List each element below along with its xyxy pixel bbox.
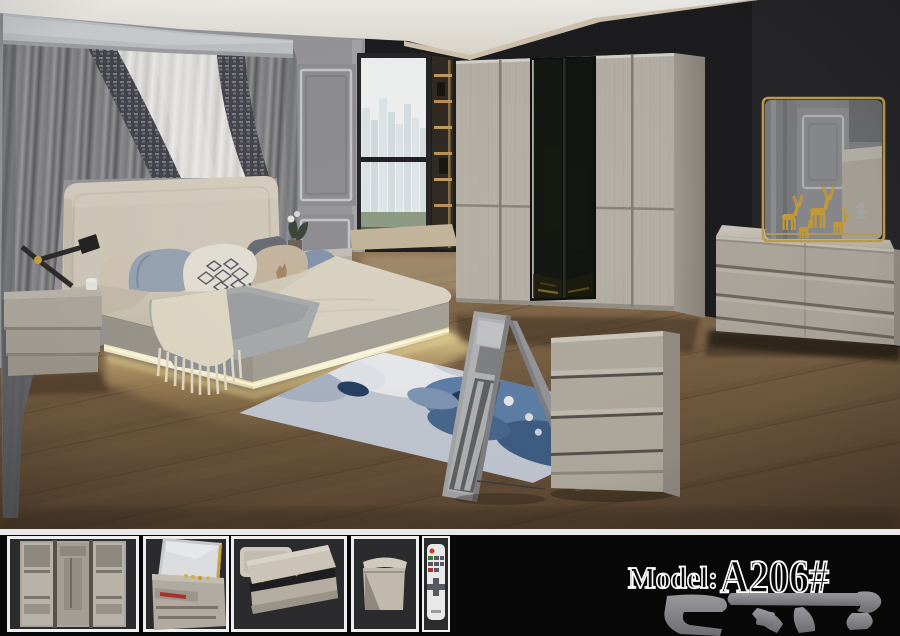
svg-text:Model:: Model: xyxy=(628,560,718,595)
